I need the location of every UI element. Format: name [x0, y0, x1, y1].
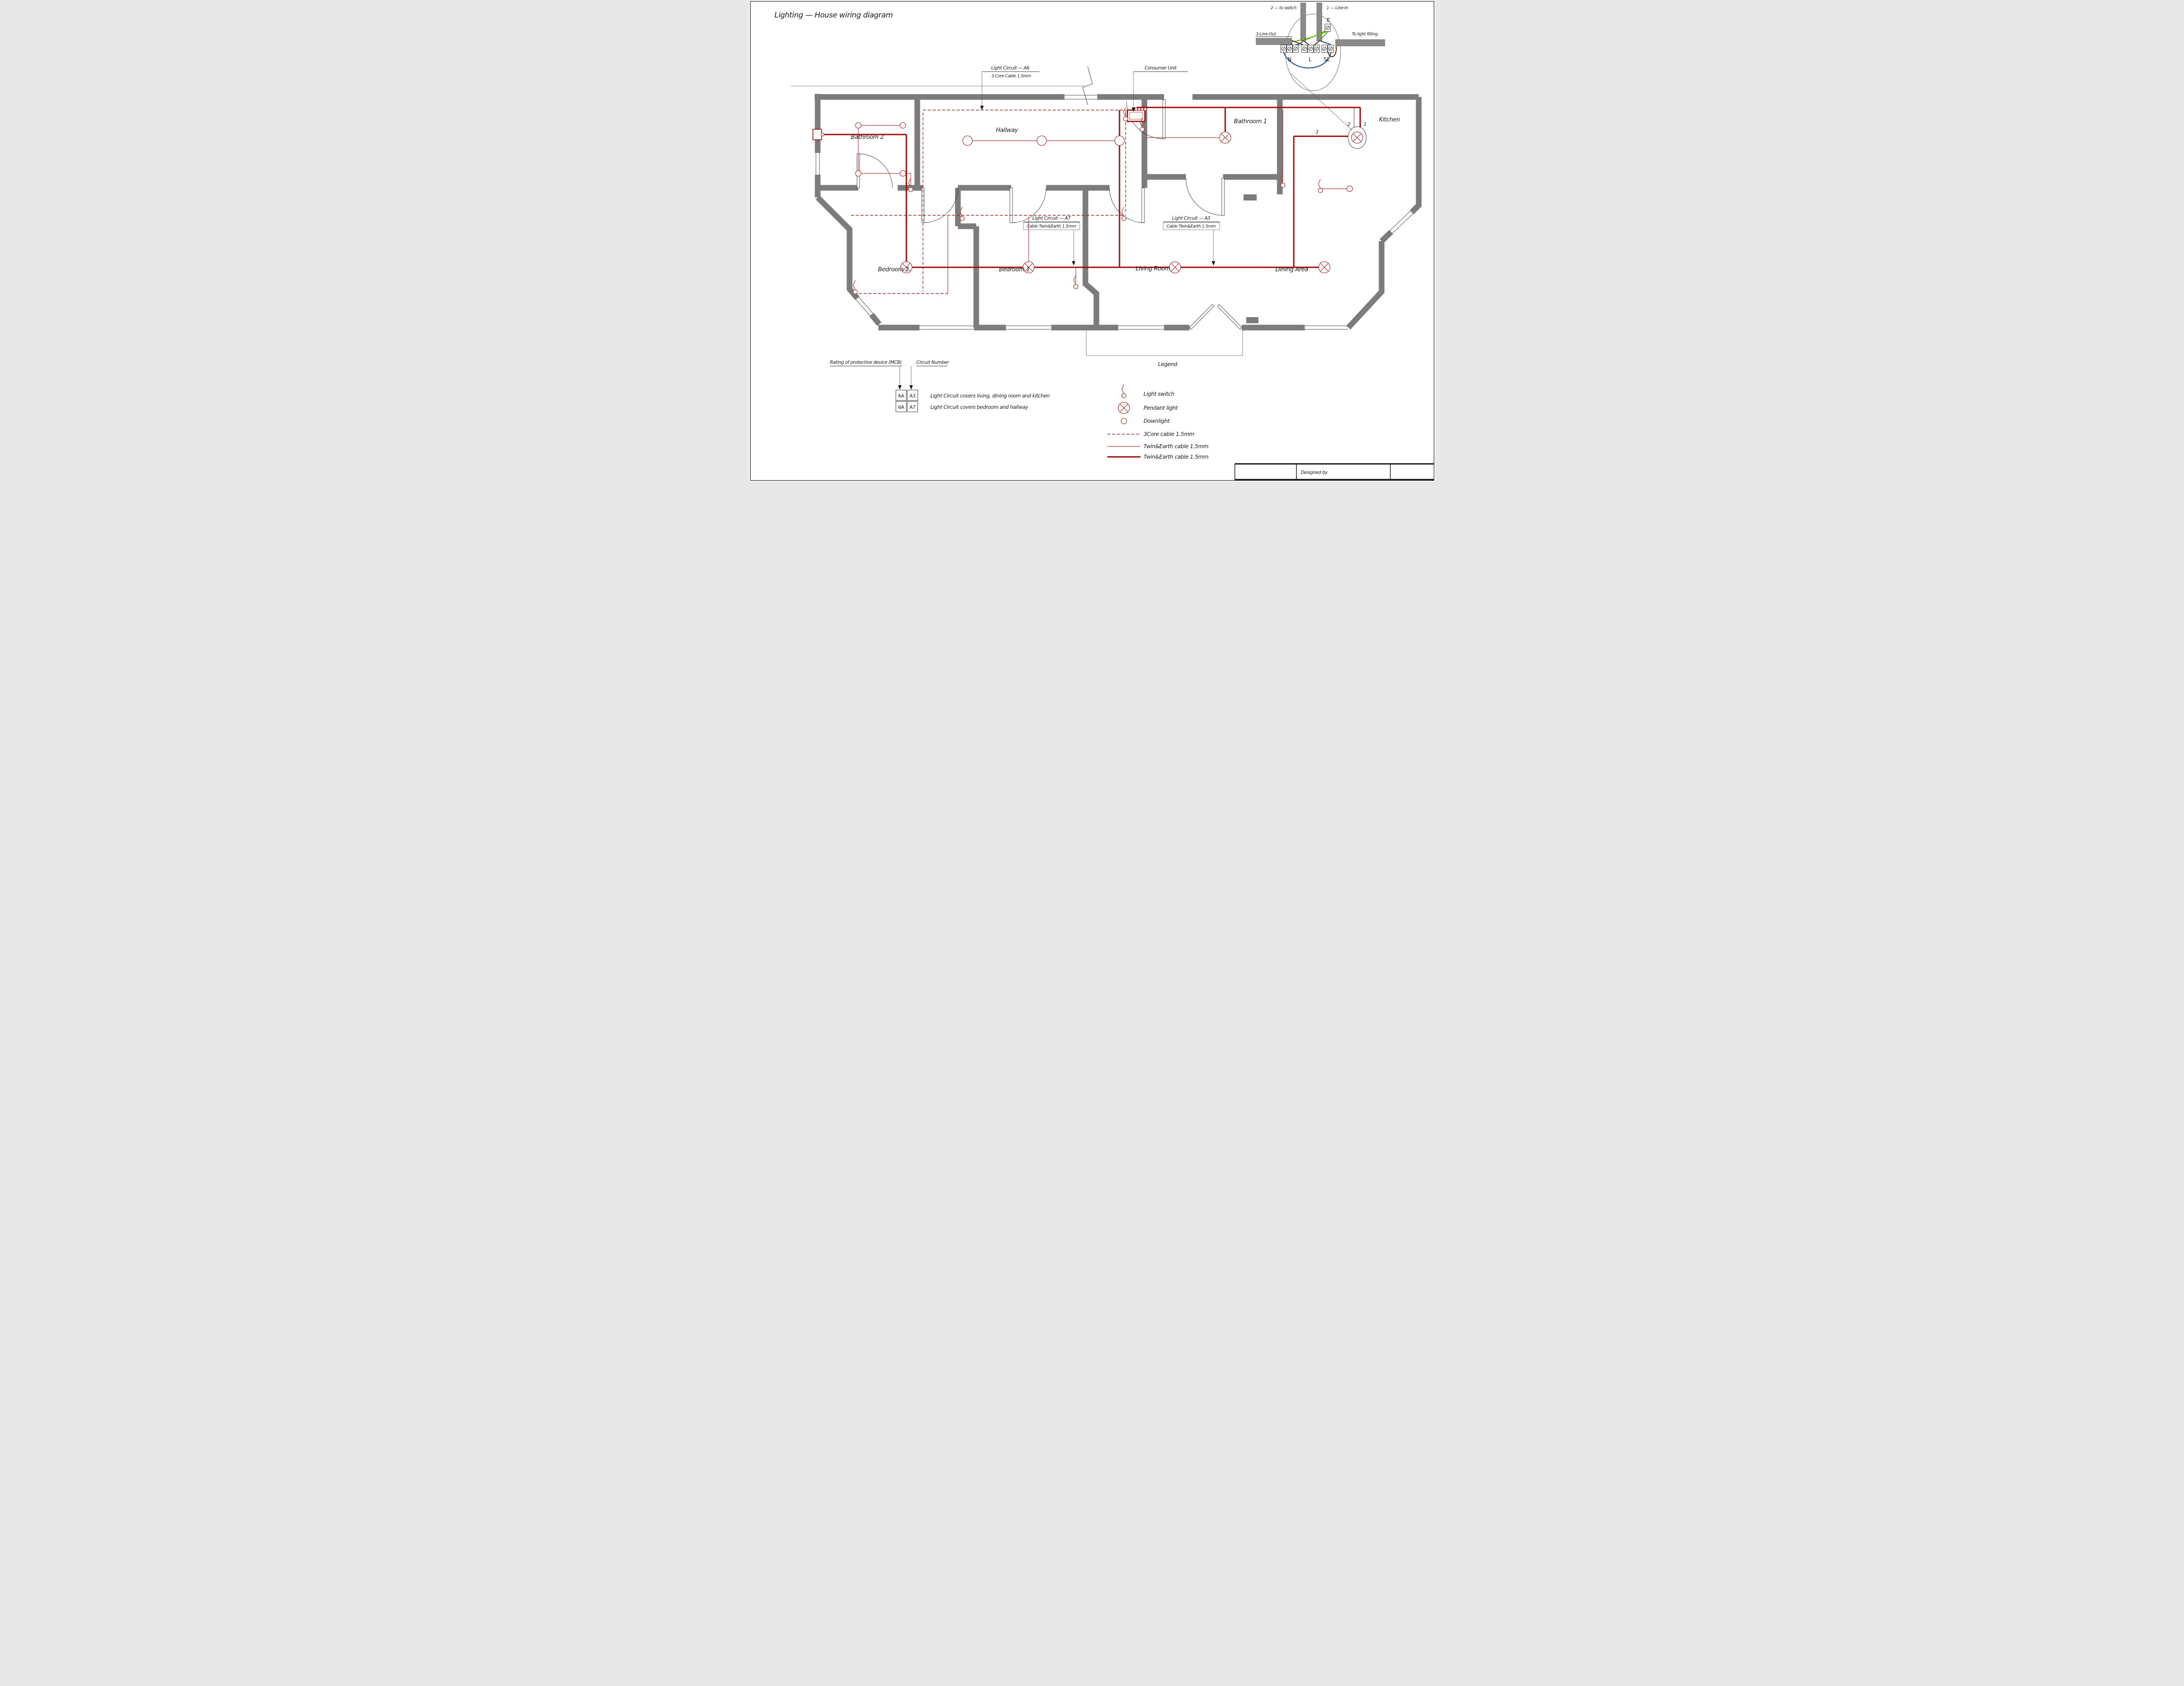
- downlight: [855, 171, 861, 176]
- legend-title: Legend: [1158, 361, 1177, 367]
- terminal-sl1: [1322, 45, 1327, 52]
- cable-to-switch: [1300, 3, 1306, 41]
- mcb-description-row2: Light Circuit covers bedroom and hallway: [930, 404, 1028, 410]
- legend-downlight-label: Downlight: [1144, 418, 1170, 424]
- french-door-right: [1217, 304, 1242, 329]
- terminal-l2: [1308, 45, 1313, 52]
- legend-pendant-light-label: Pendant light: [1144, 404, 1178, 411]
- room-label-bedroom2: Bedroom 2: [878, 266, 909, 273]
- pendant-light-dining: [1319, 262, 1330, 273]
- terminal-sl2: [1328, 45, 1334, 52]
- downlight-kitchen: [1347, 186, 1352, 192]
- door-leaf-bathroom1: [1222, 178, 1224, 215]
- mcb-note: Rating of protective device (MCB) Circui…: [830, 360, 1050, 412]
- mcb-heading-circuit: Circuit Number: [916, 360, 949, 365]
- mcb-heading-rating: Rating of protective device (MCB): [830, 360, 902, 365]
- room-label-kitchen: Kitchen: [1379, 116, 1400, 123]
- legend-light-switch-icon: [1122, 384, 1126, 398]
- annotation-a3: Light Circuit — A3 Cable Twin&Earth 1.5m…: [1163, 216, 1220, 266]
- designed-by-label: Designed by: [1301, 470, 1328, 475]
- annotation-a6: Light Circuit — A6 3 Core Cable 1.5mm: [980, 66, 1040, 110]
- annotation-consumer-unit: Consumer Unit: [1132, 66, 1188, 112]
- room-label-bathroom2: Bathroom 2: [851, 134, 884, 141]
- downlight: [900, 123, 905, 128]
- room-label-dining: Dining Area: [1275, 266, 1308, 273]
- legend-pendant-light-icon: [1118, 402, 1130, 414]
- annotation-a3-line2: Cable Twin&Earth 1.5mm: [1166, 224, 1215, 229]
- terminal-n2: [1287, 45, 1292, 52]
- cable-thick-kitchen-3: [1294, 136, 1348, 267]
- annotation-a3-line1: Light Circuit — A3: [1172, 216, 1210, 221]
- terminal-l3: [1314, 45, 1320, 52]
- wiring-diagram-page: Lighting — House wiring diagram: [749, 0, 1435, 482]
- mcb-circuit-row1: A3: [909, 393, 916, 399]
- diagram-canvas: Lighting — House wiring diagram: [749, 0, 1435, 482]
- page-border: [750, 1, 1434, 480]
- title-block: Designed by: [1235, 464, 1434, 480]
- door-leaf-bathroom1-top: [1163, 100, 1165, 139]
- legend: Legend Light switch Pendant light Downli…: [1107, 361, 1209, 460]
- french-door-left: [1189, 304, 1214, 329]
- label-switched-live: SL: [1324, 56, 1330, 62]
- consumer-unit-label: Consumer Unit: [1144, 66, 1177, 71]
- cable-line-out: [1256, 38, 1292, 45]
- annotation-a7-line1: Light Circuit — A7: [1032, 216, 1071, 221]
- windows-layer: [816, 95, 1413, 329]
- pendant-light-kitchen: [1348, 127, 1366, 149]
- legend-3core-cable-label: 3Core cable 1.5mm: [1144, 431, 1194, 437]
- terminal-n3: [1293, 45, 1299, 52]
- ceiling-rose-detail: 2 — to switch 1 — Line-In 3-Line-Out To …: [1256, 3, 1385, 130]
- label-to-light-fitting: To light fitting: [1352, 32, 1378, 37]
- mcb-rating-row2: 6A: [898, 404, 905, 410]
- legend-light-switch-label: Light switch: [1144, 390, 1175, 397]
- cable-thick-top-run: [1137, 107, 1360, 110]
- legend-downlight-icon: [1121, 418, 1127, 424]
- walls-layer: [815, 94, 1419, 328]
- downlight-hallway: [1115, 136, 1124, 145]
- wire-marker-3: 3: [1315, 130, 1318, 135]
- cable-thick-bathroom2: [822, 135, 906, 267]
- earth-wires: [1292, 30, 1328, 42]
- legend-twin-earth-thick-label: Twin&Earth cable 1.5mm: [1144, 453, 1209, 460]
- chimney-bump: [1246, 317, 1258, 323]
- terminal-earth: [1325, 24, 1330, 31]
- downlight: [855, 123, 861, 128]
- legend-twin-earth-thin-label: Twin&Earth cable 1.5mm: [1144, 443, 1209, 449]
- room-label-bathroom1: Bathroom 1: [1234, 118, 1267, 125]
- extractor-device: [813, 129, 824, 140]
- label-earth: E: [1327, 17, 1330, 23]
- label-to-switch: 2 — to switch: [1270, 6, 1296, 10]
- downlight-hallway: [963, 136, 972, 145]
- wire-marker-1: 1: [1363, 122, 1366, 127]
- annotation-a7-line2: Cable Twin&Earth 1.5mm: [1026, 224, 1075, 229]
- label-line-out: 3-Line-Out: [1256, 32, 1277, 37]
- mcb-rating-row1: 6A: [898, 393, 905, 399]
- downlight-hallway: [1037, 136, 1047, 145]
- consumer-unit: [1127, 108, 1147, 121]
- pendant-light-living: [1169, 262, 1181, 273]
- patio-outline: [1086, 330, 1243, 356]
- annotation-a7: Light Circuit — A7 Cable Twin&Earth 1.5m…: [1023, 216, 1080, 266]
- label-live: L: [1308, 56, 1311, 62]
- door-leaf-living: [1142, 188, 1144, 223]
- room-label-hallway: Hallway: [996, 127, 1019, 134]
- door-leaf-bedroom1: [1010, 188, 1013, 223]
- terminal-n1: [1281, 45, 1286, 52]
- light-switch-bedroom2: [853, 280, 857, 294]
- label-line-in: 1 — Line-In: [1327, 6, 1348, 10]
- earth-wires-sleeve: [1292, 30, 1328, 42]
- terminal-l1: [1302, 45, 1307, 52]
- cable-to-light-fitting: [1335, 39, 1385, 46]
- pendant-light-bathroom1: [1220, 132, 1231, 143]
- annotation-a6-line2: 3 Core Cable 1.5mm: [991, 74, 1031, 79]
- downlight: [900, 171, 905, 176]
- page-title: Lighting — House wiring diagram: [774, 11, 893, 20]
- light-switch-kitchen: [1318, 179, 1323, 193]
- label-neutral: N: [1287, 56, 1291, 62]
- mcb-circuit-row2: A7: [909, 404, 916, 410]
- mcb-description-row1: Light Circuit covers living, dining room…: [930, 393, 1050, 399]
- room-label-living: Living Room: [1136, 265, 1170, 272]
- neutral-wires: [1284, 41, 1331, 68]
- annotation-a6-line1: Light Circuit — A6: [991, 66, 1030, 71]
- duct-bump: [1244, 194, 1257, 200]
- room-label-bedroom1: Bedroom 1: [999, 266, 1030, 273]
